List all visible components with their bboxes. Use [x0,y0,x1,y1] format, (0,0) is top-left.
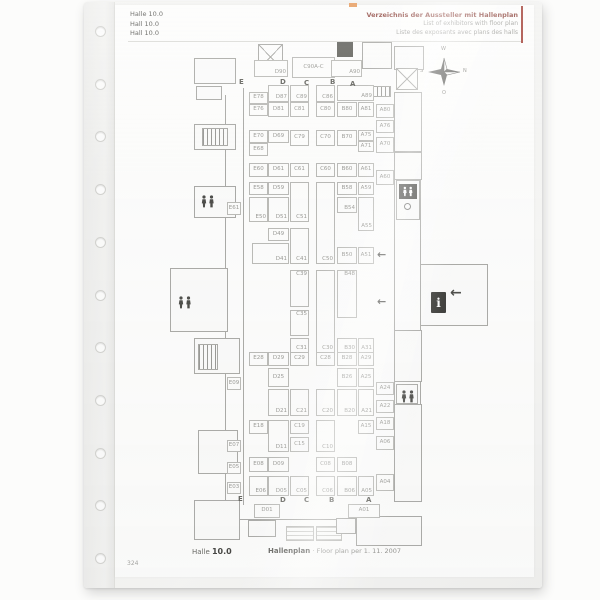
booth-A15: A15 [358,420,374,434]
column-letter-D: D [280,78,286,86]
booth-E07: E07 [227,440,241,452]
booth-E08: E08 [249,457,268,472]
booth-D61: D61 [268,163,289,177]
entrance-arrow-icon: ← [377,296,386,307]
booth-C90A-C: C90A-C [292,57,335,78]
footer-hall-number: 10.0 [212,547,232,556]
wall-room [394,92,422,152]
booth-A05: A05 [358,476,374,496]
booth-A75: A75 [358,130,374,141]
booth-A06: A06 [376,436,394,450]
booth-E28: E28 [249,352,268,366]
booth-A70: A70 [376,137,394,153]
binder-hole [95,26,106,37]
booth-C89: C89 [290,85,309,102]
booth-B60: B60 [337,163,357,177]
booth-D01: D01 [254,504,280,518]
column-letter-E: E [238,495,243,503]
booth-C61: C61 [290,163,309,177]
booth-C21: C21 [290,389,309,416]
hall-title-block: Halle 10.0 Hall 10.0 Hall 10.0 [130,10,163,39]
booth-A21: A21 [358,389,374,416]
booth-E60: E60 [249,163,268,177]
booth-E05: E05 [227,462,241,474]
compass-rose: W N S O [418,46,470,98]
wall-room [196,86,222,100]
column-letter-B: B [329,496,334,504]
booth-E68: E68 [249,143,268,156]
booth-C70: C70 [316,130,335,146]
header-rule [128,41,522,42]
booth-C39: C39 [290,270,309,307]
booth-B20: B20 [337,389,357,416]
service-block [337,42,353,57]
exhibitors-title-de: Verzeichnis der Aussteller mit Hallenpla… [280,11,518,20]
booth-C15: C15 [290,437,309,452]
booth-A51: A51 [358,247,374,264]
booth-C35: C35 [290,310,309,336]
wall-room [336,518,356,534]
booth-E50: E50 [249,197,268,222]
wc-icon [176,294,194,313]
booth-A81: A81 [358,102,374,117]
wall-room [194,58,236,84]
column-letter-A: A [350,80,355,88]
wall-room [394,152,422,180]
compass-w: W [441,46,446,52]
booth-D11: D11 [268,420,289,452]
photo-background: Halle 10.0 Hall 10.0 Hall 10.0 Verzeichn… [0,0,600,600]
booth-C80: C80 [316,102,335,117]
booth-B70: B70 [337,130,357,146]
booth-E03: E03 [227,482,241,494]
elevator-shaft-icon [396,68,418,90]
booth-B08: B08 [337,457,357,472]
booth-A31: A31 [358,338,374,353]
booth-C29: C29 [290,352,309,366]
booth-B80: B80 [337,102,357,117]
wall-room [394,330,422,382]
booth-C20: C20 [316,389,335,416]
lift-circle-icon [404,203,411,210]
booth-D51: D51 [268,197,289,222]
booth-A24: A24 [376,382,394,395]
compass-o: O [442,90,446,96]
wall-room [394,404,422,502]
wall-room [394,46,424,70]
booth-E09: E09 [227,377,241,390]
booth-D29: D29 [268,352,289,366]
orange-edge-mark [349,3,357,7]
booth-A90: A90 [331,60,362,77]
booth-D87: D87 [268,85,289,102]
binder-hole [95,237,106,248]
booth-C06: C06 [316,476,335,496]
booth-A76: A76 [376,120,394,133]
booth-E18: E18 [249,420,268,434]
column-letter-C: C [304,79,309,87]
booth-C50: C50 [316,182,335,264]
booth-A04: A04 [376,474,394,491]
booth-A71: A71 [358,141,374,152]
booth-A61: A61 [358,163,374,177]
booth-B50: B50 [337,247,357,264]
booth-C51: C51 [290,182,309,222]
booth-E58: E58 [249,182,268,195]
booth-D05: D05 [268,476,289,496]
booth-B58: B58 [337,182,357,195]
wc-icon [199,193,217,212]
exhibitors-title-block: Verzeichnis der Aussteller mit Hallenpla… [280,11,518,37]
booth-C86: C86 [316,85,335,102]
footer-plan: Hallenplan · Floor plan per 1. 11. 2007 [268,547,401,555]
booth-D81: D81 [268,102,289,117]
booth-B26: B26 [337,368,357,387]
booth-C10: C10 [316,420,335,452]
booth-A55: A55 [358,197,374,231]
booth-A59: A59 [358,182,374,195]
booth-E78: E78 [249,92,268,104]
wall-room [356,516,422,546]
booth-C41: C41 [290,228,309,264]
booth-A29: A29 [358,352,374,366]
binder-hole [95,395,106,406]
booth-D49: D49 [268,228,289,241]
entrance-arrow-icon: ← [450,286,462,300]
booth-C28: C28 [316,352,335,366]
booth-C05: C05 [290,476,309,496]
booth-D41: D41 [252,243,289,264]
exhibitors-title-en: List of exhibitors with floor plan [280,20,518,29]
booth-C19: C19 [290,420,309,434]
wall-room [248,520,276,537]
booth-D69: D69 [268,130,289,143]
hall-title-en: Hall 10.0 [130,20,163,30]
footer-plan-date: · Floor plan per 1. 11. 2007 [312,547,401,555]
booth-E70: E70 [249,130,268,143]
booth-B06: B06 [337,476,357,496]
booth-D21: D21 [268,389,289,416]
stairs-icon [202,128,228,146]
booth-D59: D59 [268,182,289,195]
binder-hole [95,553,106,564]
booth-A80: A80 [376,104,394,118]
wc-icon [399,184,417,199]
exhibitors-title-fr: Liste des exposants avec plans des halls [280,29,518,38]
entrance-arrow-icon: ← [377,249,386,260]
booth-E76: E76 [249,104,268,116]
booth-B30: B30 [337,338,357,353]
stairs-icon [198,344,218,370]
wall-room [194,500,240,540]
page-number: 324 [127,560,138,567]
booth-B28: B28 [337,352,357,366]
booth-A89: A89 [337,85,374,101]
wall-segment [243,88,244,505]
booth-C79: C79 [290,130,309,146]
footer-hall-word: Halle [192,548,210,556]
hall-title-de: Halle 10.0 [130,10,163,20]
booth-C60: C60 [316,163,335,177]
booth-A22: A22 [376,400,394,413]
booth-C08: C08 [316,457,335,472]
column-letter-A: A [366,496,371,504]
wall-room [362,42,392,69]
binder-hole [95,79,106,90]
column-letter-B: B [330,78,335,86]
binder-hole [95,290,106,301]
booth-A01: A01 [348,504,380,518]
information-icon: i [431,292,446,313]
booth-E61: E61 [227,202,241,215]
wc-icon [399,388,417,407]
booth-A60: A60 [376,170,394,185]
footer-plan-word: Hallenplan [268,547,310,555]
footer-hall: Halle 10.0 [192,547,232,556]
hall-title-fr: Hall 10.0 [130,29,163,39]
booth-C81: C81 [290,102,309,117]
column-letter-D: D [280,496,286,504]
booth-A18: A18 [376,417,394,430]
booth-A25: A25 [358,368,374,387]
legend-box [286,526,314,541]
column-letter-C: C [304,496,309,504]
booth-D25: D25 [268,368,289,387]
booth-B54: B54 [337,197,357,213]
booth-C30: C30 [316,270,335,353]
booth-D90: D90 [254,60,288,77]
red-edge-mark [521,6,523,43]
booth-C31: C31 [290,338,309,353]
compass-n: N [463,68,467,74]
column-letter-E: E [239,78,244,86]
booth-E06: E06 [249,476,268,496]
booth-B48: B48 [337,270,357,318]
booth-D09: D09 [268,457,289,472]
binder-hole [95,448,106,459]
